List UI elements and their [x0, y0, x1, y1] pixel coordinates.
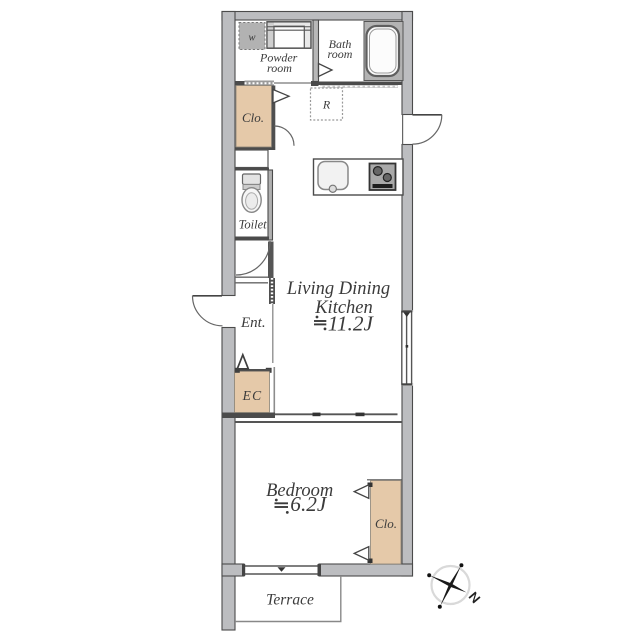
svg-text:11.2J: 11.2J	[328, 312, 375, 336]
svg-text:Living Dining: Living Dining	[286, 279, 390, 299]
svg-text:room: room	[328, 47, 353, 61]
svg-text:Ent.: Ent.	[240, 315, 266, 331]
svg-text:Clo.: Clo.	[242, 110, 264, 125]
svg-text:room: room	[267, 61, 292, 75]
svg-text:R: R	[322, 98, 331, 112]
svg-text:Clo.: Clo.	[375, 516, 397, 531]
svg-text:Toilet: Toilet	[239, 218, 268, 232]
svg-text:6.2J: 6.2J	[290, 492, 328, 516]
svg-text:w: w	[248, 33, 255, 44]
svg-text:EC: EC	[242, 388, 263, 403]
svg-text:Terrace: Terrace	[266, 592, 314, 609]
